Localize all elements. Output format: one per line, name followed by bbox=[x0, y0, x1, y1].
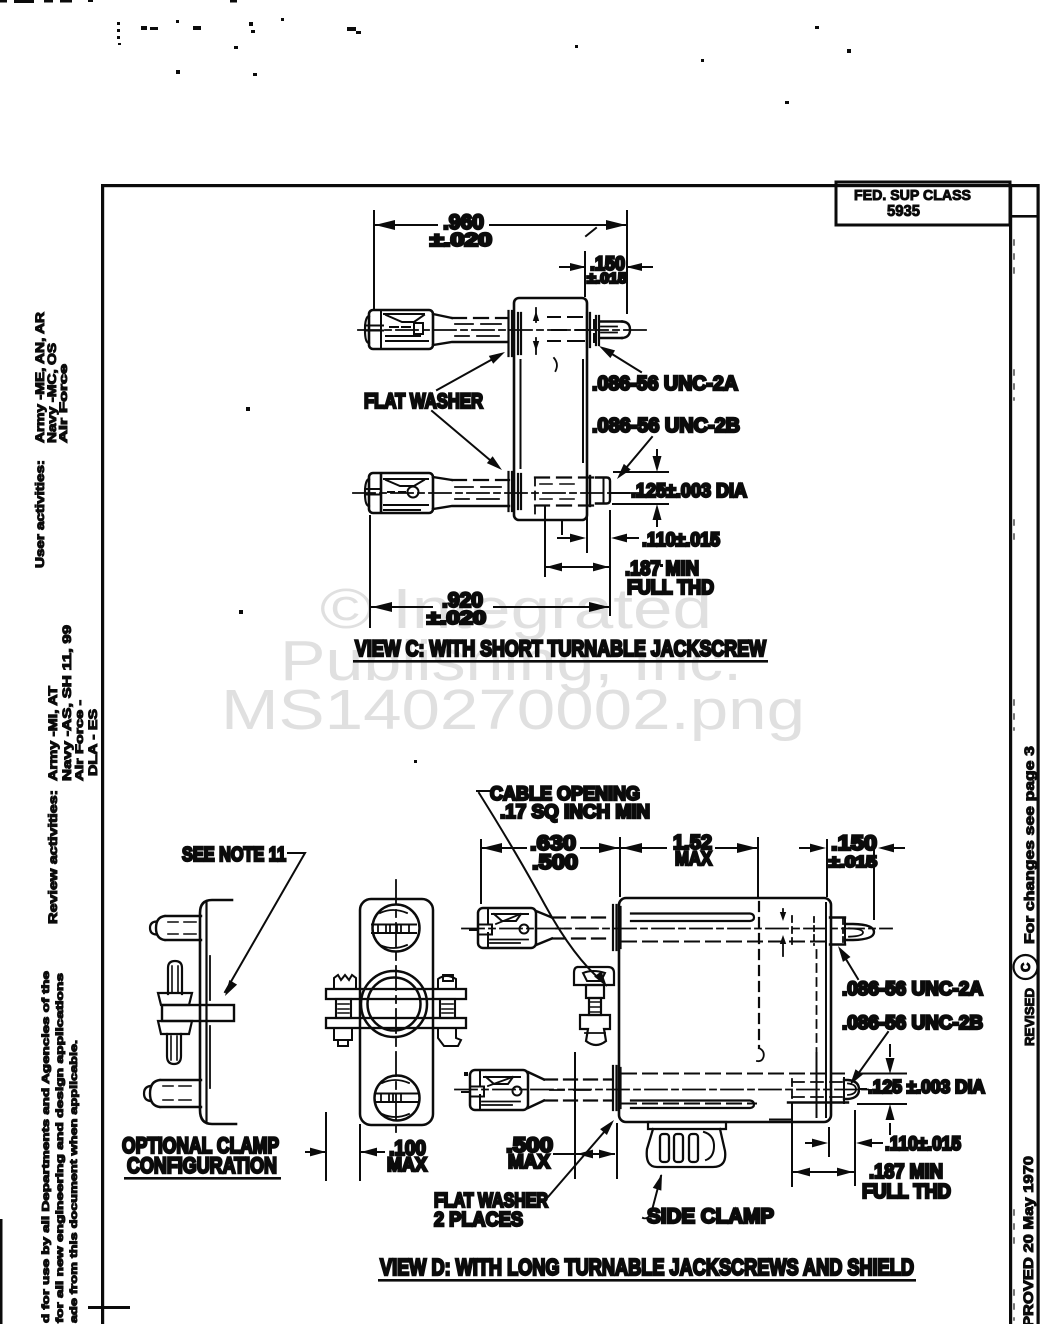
svg-text:.086-56 UNC-2B: .086-56 UNC-2B bbox=[842, 1013, 983, 1034]
svg-text:.500: .500 bbox=[532, 851, 578, 874]
svg-text:±.015: ±.015 bbox=[587, 270, 627, 287]
svg-text:.187 MIN: .187 MIN bbox=[869, 1161, 943, 1183]
svg-text:Air Force: Air Force bbox=[58, 364, 70, 443]
svg-text:Navy -MC, OS: Navy -MC, OS bbox=[45, 343, 59, 443]
svg-text:VIEW D: WITH LONG TURNABLE JAC: VIEW D: WITH LONG TURNABLE JACKSCREWS AN… bbox=[380, 1254, 914, 1280]
svg-text:Army -MI, AT: Army -MI, AT bbox=[46, 685, 60, 781]
svg-text:C: C bbox=[1018, 962, 1033, 972]
svg-text:Review activities:: Review activities: bbox=[48, 790, 60, 924]
svg-text:Air Force -: Air Force - bbox=[74, 700, 86, 781]
svg-text:.086-56 UNC-2A: .086-56 UNC-2A bbox=[842, 979, 983, 1000]
svg-text:FED. SUP CLASS: FED. SUP CLASS bbox=[854, 187, 971, 204]
svg-text:SIDE CLAMP: SIDE CLAMP bbox=[647, 1205, 774, 1228]
svg-text:REVISED: REVISED bbox=[1022, 988, 1037, 1046]
svg-text:.125 ±.003 DIA: .125 ±.003 DIA bbox=[868, 1077, 985, 1097]
svg-text:.086-56 UNC-2A: .086-56 UNC-2A bbox=[592, 373, 738, 395]
svg-text:FULL THD: FULL THD bbox=[862, 1181, 951, 1203]
svg-text:ade from this document when ap: ade from this document when applicable. bbox=[68, 1040, 80, 1323]
svg-text:5935: 5935 bbox=[887, 203, 920, 220]
svg-text:for all new engineering and de: for all new engineering and design appli… bbox=[54, 973, 66, 1323]
svg-text:DLA - ES: DLA - ES bbox=[86, 709, 100, 776]
svg-text:FLAT WASHER: FLAT WASHER bbox=[364, 390, 483, 413]
svg-text:.086-56 UNC-2B: .086-56 UNC-2B bbox=[592, 415, 740, 437]
svg-text:±.020: ±.020 bbox=[430, 230, 492, 250]
svg-text:PROVED 20 May 1970: PROVED 20 May 1970 bbox=[1021, 1156, 1036, 1324]
svg-text:±.020: ±.020 bbox=[427, 608, 486, 628]
svg-text:.17 SQ INCH MIN: .17 SQ INCH MIN bbox=[500, 802, 650, 823]
svg-text:2 PLACES: 2 PLACES bbox=[434, 1209, 523, 1231]
svg-text:MAX: MAX bbox=[508, 1152, 550, 1173]
svg-text:VIEW C: WITH SHORT TURNABLE J: VIEW C: WITH SHORT TURNABLE JACKSCREW bbox=[355, 636, 766, 661]
svg-text:.125±.003 DIA: .125±.003 DIA bbox=[631, 481, 747, 502]
svg-text:.110±.015: .110±.015 bbox=[642, 530, 720, 551]
svg-text:.150: .150 bbox=[831, 832, 877, 855]
svg-text:SEE NOTE 11: SEE NOTE 11 bbox=[182, 844, 286, 866]
svg-text:MAX: MAX bbox=[675, 849, 712, 870]
svg-text:CONFIGURATION: CONFIGURATION bbox=[127, 1153, 277, 1178]
svg-text:d for use by all Departments a: d for use by all Departments and Agencie… bbox=[40, 971, 52, 1323]
svg-text:User activities:: User activities: bbox=[35, 460, 47, 568]
svg-text:Navy -AS, SH 11, 99: Navy -AS, SH 11, 99 bbox=[60, 625, 74, 781]
svg-text:MAX: MAX bbox=[387, 1155, 427, 1176]
svg-text:.110±.015: .110±.015 bbox=[885, 1134, 961, 1155]
svg-text:MS140270002.png: MS140270002.png bbox=[221, 678, 805, 742]
svg-text:For changes see page 3: For changes see page 3 bbox=[1022, 745, 1037, 944]
svg-text:±.015: ±.015 bbox=[829, 854, 877, 871]
svg-text:FULL THD: FULL THD bbox=[627, 577, 714, 599]
